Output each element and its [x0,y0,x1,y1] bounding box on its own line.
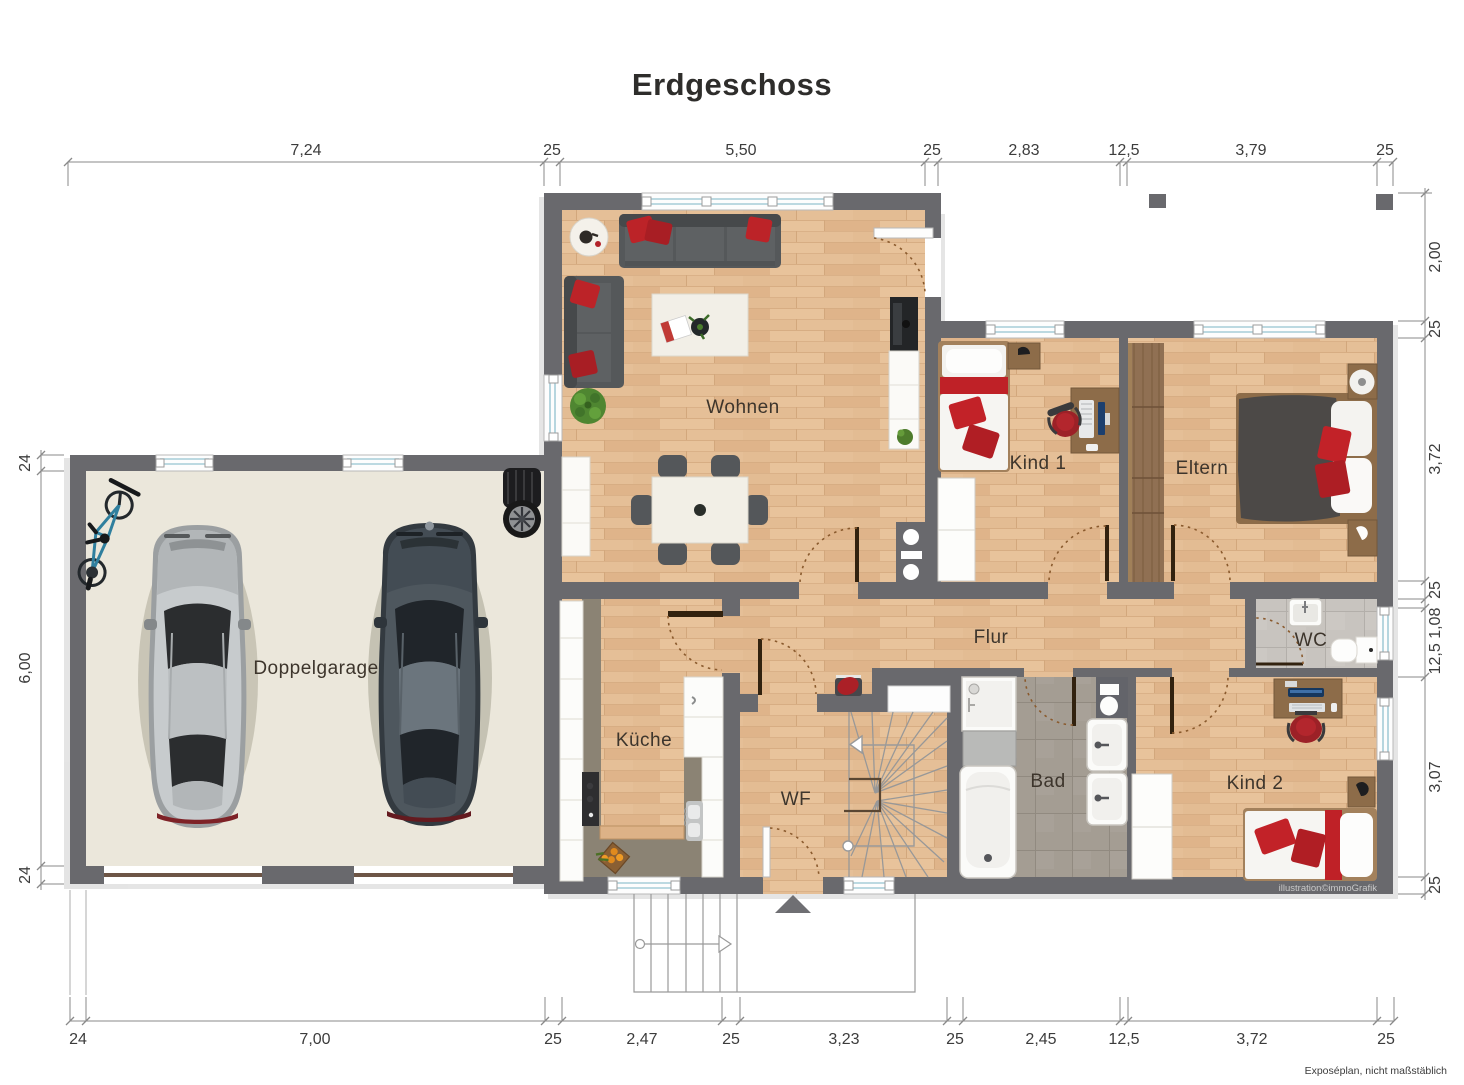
svg-text:Küche: Küche [616,730,672,751]
svg-text:12,5: 12,5 [1108,1031,1139,1048]
svg-text:12,5: 12,5 [1108,142,1139,159]
svg-text:WF: WF [781,789,812,810]
svg-text:25: 25 [543,142,561,159]
svg-text:25: 25 [722,1031,740,1048]
svg-text:25: 25 [1427,876,1444,894]
svg-text:24: 24 [17,866,34,884]
svg-text:7,00: 7,00 [299,1031,330,1048]
svg-text:25: 25 [1427,320,1444,338]
svg-text:2,00: 2,00 [1427,241,1444,272]
svg-text:25: 25 [1377,1031,1395,1048]
svg-text:2,47: 2,47 [626,1031,657,1048]
svg-text:25: 25 [923,142,941,159]
svg-text:Flur: Flur [974,627,1009,648]
svg-text:25: 25 [1376,142,1394,159]
svg-text:3,72: 3,72 [1236,1031,1267,1048]
svg-text:25: 25 [946,1031,964,1048]
svg-text:3,72: 3,72 [1427,443,1444,474]
svg-text:25: 25 [544,1031,562,1048]
svg-text:25: 25 [1427,581,1444,599]
svg-text:24: 24 [69,1031,87,1048]
svg-text:2,83: 2,83 [1008,142,1039,159]
svg-text:Erdgeschoss: Erdgeschoss [632,67,832,102]
svg-text:Wohnen: Wohnen [706,397,779,418]
svg-text:illustration©immoGrafik: illustration©immoGrafik [1279,883,1378,894]
svg-text:24: 24 [17,454,34,472]
svg-text:WC: WC [1295,630,1328,651]
svg-text:3,79: 3,79 [1235,142,1266,159]
svg-text:7,24: 7,24 [290,142,321,159]
svg-text:5,50: 5,50 [725,142,756,159]
svg-text:Bad: Bad [1030,771,1065,792]
svg-text:Kind 2: Kind 2 [1227,773,1284,794]
svg-text:Kind 1: Kind 1 [1010,453,1067,474]
svg-text:3,23: 3,23 [828,1031,859,1048]
svg-text:6,00: 6,00 [17,652,34,683]
svg-text:Eltern: Eltern [1176,458,1229,479]
svg-text:Exposéplan, nicht maßstäblich: Exposéplan, nicht maßstäblich [1305,1065,1448,1077]
svg-text:3,07: 3,07 [1427,761,1444,792]
svg-text:12,5 1,08: 12,5 1,08 [1427,608,1444,675]
svg-text:2,45: 2,45 [1025,1031,1056,1048]
svg-text:Doppelgarage: Doppelgarage [253,658,378,679]
